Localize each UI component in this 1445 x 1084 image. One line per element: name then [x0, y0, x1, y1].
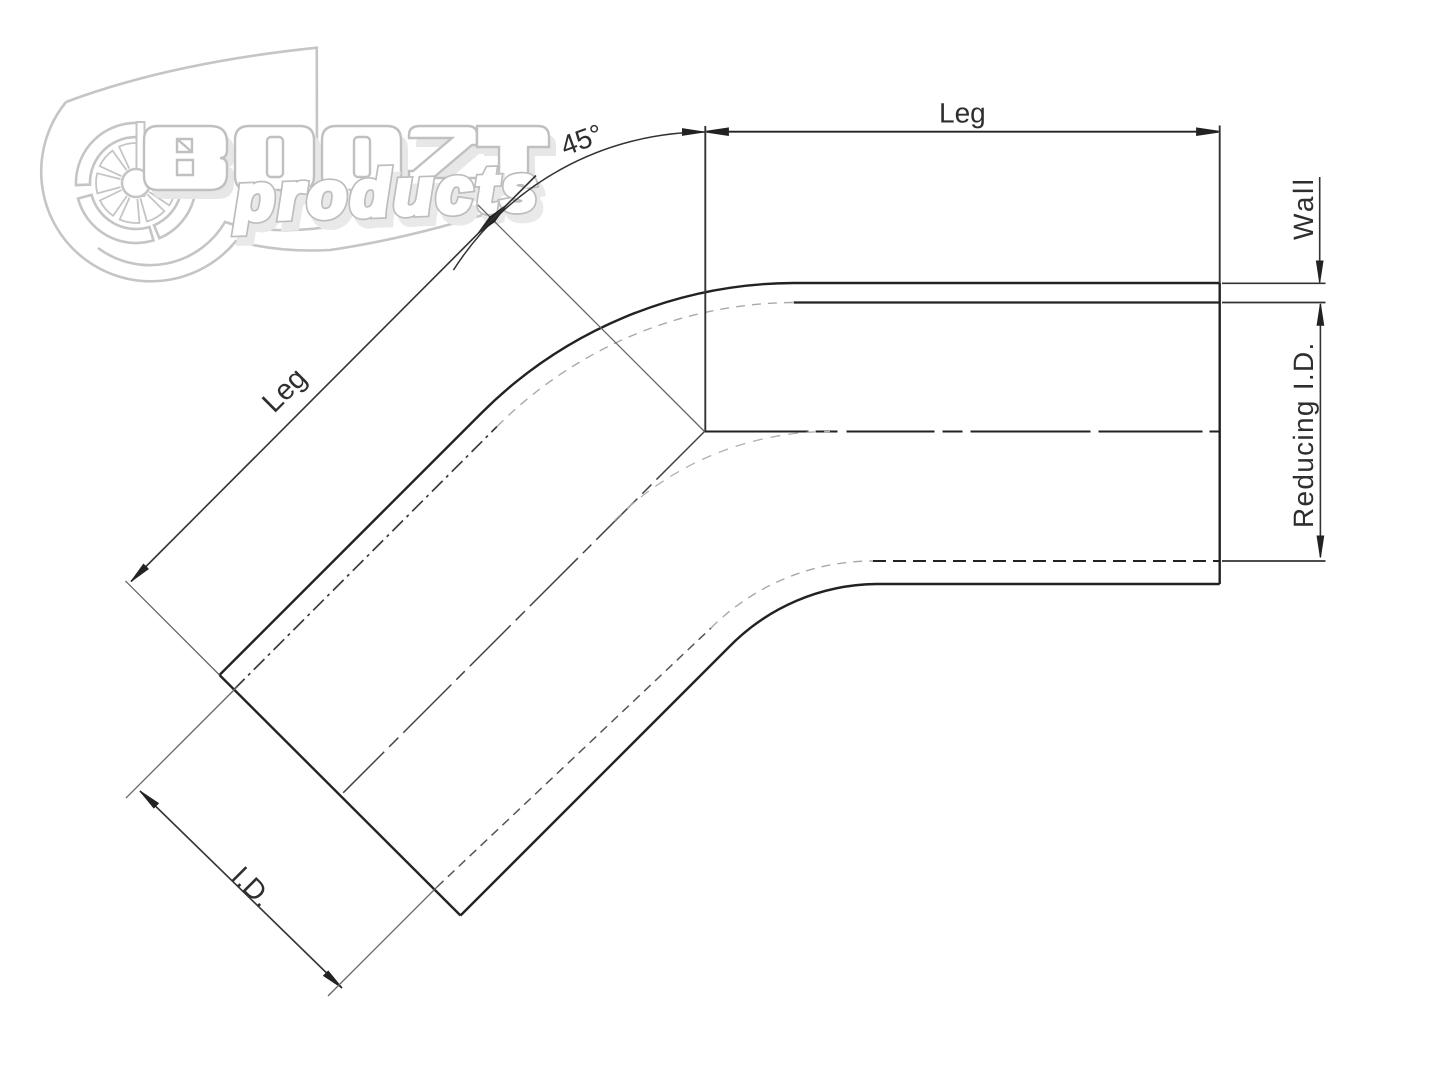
svg-text:Leg: Leg: [939, 97, 986, 128]
svg-text:Reducing I.D.: Reducing I.D.: [1288, 341, 1319, 528]
svg-text:45°: 45°: [556, 118, 606, 162]
svg-text:I.D.: I.D.: [226, 860, 279, 913]
svg-text:Leg: Leg: [256, 362, 313, 419]
svg-text:Wall: Wall: [1288, 177, 1319, 240]
